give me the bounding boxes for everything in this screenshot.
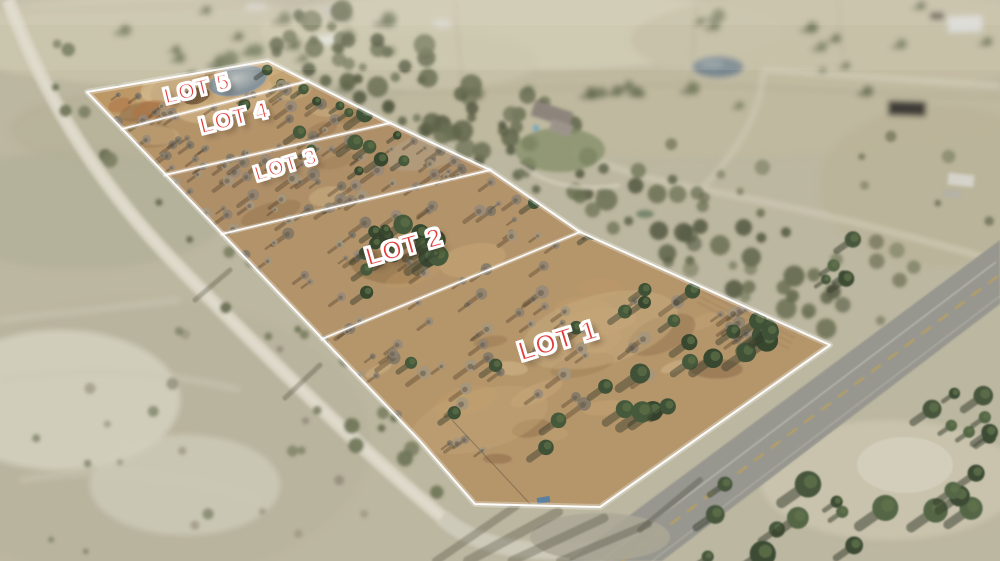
green-tree-highlight: [365, 288, 372, 295]
roadside-tree: [220, 302, 231, 313]
bare-tree-core: [330, 148, 333, 151]
bare-tree-core: [390, 148, 393, 151]
bare-tree-core: [188, 190, 191, 193]
scrub: [869, 253, 885, 269]
shrub: [334, 475, 344, 485]
bare-tree-core: [188, 144, 192, 148]
scrub: [869, 234, 884, 249]
shrub: [276, 346, 283, 353]
bare-tree-core: [287, 118, 291, 122]
shrub: [48, 537, 54, 543]
woodland-tree: [710, 235, 730, 255]
bare-tree-core: [144, 138, 148, 142]
woodland-tree: [519, 87, 535, 103]
bare-tree-core: [480, 343, 485, 348]
bare-tree-core: [484, 327, 489, 332]
bare-tree-core: [513, 198, 518, 203]
shrub: [178, 447, 186, 455]
green-tree-highlight: [840, 508, 846, 514]
bare-tree-core: [331, 118, 336, 123]
scrub: [755, 160, 770, 175]
green-tree-highlight: [348, 109, 353, 114]
green-tree-highlight: [929, 403, 938, 412]
bare-tree-core: [136, 95, 139, 98]
green-tree-highlight: [603, 381, 610, 388]
woodland-tree: [506, 145, 516, 155]
scrub: [885, 131, 896, 142]
green-tree-highlight: [968, 500, 980, 512]
scrub: [663, 256, 674, 267]
green-tree-highlight: [983, 413, 989, 419]
bare-tree-core: [428, 162, 432, 166]
green-tree-highlight: [302, 85, 307, 90]
bare-tree-core: [196, 173, 199, 176]
bare-tree-core: [323, 129, 326, 132]
scrub: [802, 308, 813, 319]
bare-tree-core: [536, 234, 539, 237]
bare-tree-core: [244, 175, 249, 180]
woodland-tree: [816, 318, 836, 338]
green-tree-highlight: [379, 154, 386, 161]
roadside-tree: [313, 406, 322, 415]
green-tree-highlight: [953, 389, 959, 395]
bare-tree-core: [316, 147, 319, 150]
green-tree-highlight: [358, 168, 363, 173]
bare-tree-core: [423, 147, 426, 150]
pasture-tree-highlight: [600, 89, 605, 94]
woodland-tree: [382, 100, 395, 113]
roadside-tree: [344, 418, 360, 434]
bare-tree-core: [426, 320, 430, 324]
woodland-tree: [668, 175, 678, 185]
scrub: [729, 261, 738, 270]
scrub: [889, 242, 905, 258]
roadside-tree: [102, 152, 118, 168]
bare-tree-core: [279, 197, 283, 201]
bare-tree-core: [485, 356, 490, 361]
green-tree-highlight: [315, 98, 320, 103]
pasture-tree-highlight: [617, 87, 622, 92]
green-tree-highlight: [974, 467, 983, 476]
green-tree-highlight: [795, 510, 806, 521]
bare-tree-core: [488, 181, 492, 185]
shrub: [84, 460, 92, 468]
scrub: [860, 181, 869, 190]
shrub: [360, 510, 368, 518]
bare-tree-core: [448, 442, 451, 445]
building: [888, 100, 927, 116]
woodland-tree: [391, 72, 401, 82]
woodland-tree: [777, 280, 791, 294]
bare-tree-core: [160, 105, 163, 108]
green-tree-highlight: [768, 325, 777, 334]
bare-tree-core: [542, 305, 546, 309]
bare-tree-core: [350, 234, 353, 237]
roadside-tree: [59, 105, 71, 117]
bare-tree-core: [204, 147, 207, 150]
bare-tree-core: [538, 290, 544, 296]
pasture-tree-highlight: [739, 103, 743, 107]
shrub: [203, 509, 214, 520]
roadside-tree: [430, 486, 443, 499]
scrub: [716, 170, 725, 179]
green-tree-highlight: [544, 442, 552, 450]
roadside-tree: [52, 84, 60, 92]
pasture-tree-highlight: [630, 85, 634, 89]
bare-tree-core: [316, 181, 319, 184]
bare-tree-core: [462, 438, 466, 442]
scrub: [942, 150, 955, 163]
bare-tree-core: [249, 193, 254, 198]
green-tree-highlight: [409, 358, 415, 364]
shrub: [175, 327, 184, 336]
green-tree-highlight: [980, 389, 990, 399]
woodland-tree: [422, 113, 441, 132]
bare-tree-core: [517, 311, 521, 315]
woodland-tree: [781, 227, 791, 237]
bare-tree-core: [540, 264, 545, 269]
bare-tree-core: [431, 173, 436, 178]
green-tree-highlight: [835, 497, 841, 503]
green-tree-highlight: [723, 479, 731, 487]
shrub: [190, 521, 199, 530]
pasture-tree-highlight: [867, 87, 872, 92]
green-tree-highlight: [804, 475, 817, 488]
green-tree-highlight: [844, 273, 852, 281]
bare-tree-core: [411, 140, 415, 144]
shrub: [148, 406, 159, 417]
green-tree-highlight: [666, 401, 674, 409]
bare-tree-core: [185, 137, 188, 140]
shrub: [104, 421, 111, 428]
bare-tree-core: [374, 374, 377, 377]
bare-tree-core: [395, 343, 399, 347]
green-tree-highlight: [639, 404, 650, 415]
shed: [944, 189, 961, 199]
shrub: [287, 445, 298, 456]
woodland-tree: [628, 178, 644, 194]
woodland-tree: [598, 163, 609, 174]
bare-tree-core: [462, 387, 467, 392]
green-tree-highlight: [688, 356, 696, 364]
pool: [533, 125, 539, 131]
green-tree-highlight: [494, 361, 501, 368]
scrub: [892, 273, 907, 288]
distance-haze: [0, 0, 1000, 25]
scrub: [907, 260, 921, 274]
woodland-tree: [624, 216, 633, 225]
scrub: [935, 200, 942, 207]
bare-tree-core: [176, 139, 179, 142]
sand-patch: [857, 437, 953, 493]
green-tree-highlight: [353, 137, 361, 145]
bare-tree-core: [440, 365, 443, 368]
bare-tree-core: [279, 98, 282, 101]
shrub: [297, 446, 305, 454]
bare-tree-core: [459, 167, 463, 171]
green-tree-highlight: [622, 403, 631, 412]
pasture-tree-highlight: [692, 83, 698, 89]
shrub: [32, 434, 40, 442]
roadside-tree: [378, 424, 386, 432]
roadside-tree: [294, 326, 301, 333]
woodland-tree: [413, 114, 421, 122]
roadside-tree: [300, 330, 309, 339]
green-tree-highlight: [967, 428, 973, 434]
bare-tree-core: [583, 354, 586, 357]
bare-tree-core: [302, 274, 306, 278]
woodland-tree: [575, 169, 584, 178]
bare-tree-core: [161, 154, 163, 156]
green-tree-highlight: [759, 545, 772, 558]
bare-tree-core: [352, 183, 357, 188]
green-tree-highlight: [298, 127, 305, 134]
woodland-tree: [756, 233, 766, 243]
scrub: [744, 262, 757, 275]
woodland-tree: [532, 185, 541, 194]
bare-tree-core: [308, 281, 311, 284]
woodland-tree: [693, 219, 708, 234]
shrub: [166, 378, 178, 390]
green-tree-highlight: [987, 426, 995, 434]
green-tree-highlight: [706, 552, 712, 558]
green-tree-highlight: [950, 484, 959, 493]
green-tree-highlight: [452, 408, 459, 415]
bare-tree-core: [339, 296, 343, 300]
terrain-graphic: [0, 0, 1000, 561]
green-tree-highlight: [824, 276, 829, 281]
green-tree-highlight: [950, 421, 956, 427]
bare-tree-core: [390, 182, 394, 186]
scrub: [835, 297, 851, 313]
woodland-tree: [367, 76, 388, 97]
bare-tree-core: [193, 158, 196, 161]
green-tree-highlight: [850, 234, 858, 242]
bare-tree-core: [272, 241, 275, 244]
scrub: [858, 153, 865, 160]
bare-tree-core: [337, 243, 341, 247]
woodland-tree: [631, 163, 646, 178]
bare-tree-core: [580, 402, 586, 408]
green-tree-highlight: [851, 539, 860, 548]
shrub: [302, 417, 309, 424]
bare-tree-core: [535, 393, 539, 397]
bare-tree-core: [287, 105, 292, 110]
roadside-tree: [397, 450, 413, 466]
green-tree-highlight: [710, 351, 720, 361]
bare-tree-core: [718, 313, 721, 316]
scrub: [683, 261, 699, 277]
bare-tree-core: [374, 168, 380, 174]
small-pond: [636, 210, 654, 219]
woodland-tree: [649, 221, 668, 240]
bare-tree-core: [273, 209, 276, 212]
bare-tree-core: [488, 209, 493, 214]
bare-tree-core: [529, 322, 533, 326]
bare-tree-core: [429, 204, 434, 209]
pasture-tree-highlight: [641, 91, 645, 95]
roadside-tree: [155, 199, 162, 206]
woodland-tree: [756, 209, 765, 218]
green-tree-highlight: [643, 285, 650, 292]
scrub: [876, 316, 885, 325]
green-tree-highlight: [637, 366, 647, 376]
bare-tree-core: [240, 160, 245, 165]
woodland-tree: [460, 74, 482, 96]
bare-tree-core: [344, 257, 346, 259]
green-tree-highlight: [712, 508, 722, 518]
bare-tree-core: [497, 203, 500, 206]
green-tree-highlight: [339, 103, 343, 107]
green-tree-highlight: [881, 499, 894, 512]
green-tree-highlight: [643, 298, 649, 304]
bare-tree-core: [224, 213, 228, 217]
bare-tree-core: [560, 372, 566, 378]
scrub: [984, 216, 993, 225]
bare-tree-core: [458, 402, 464, 408]
roadside-tree: [186, 236, 193, 243]
woodland-tree: [585, 202, 600, 217]
green-tree-highlight: [672, 316, 678, 322]
scrub: [740, 291, 751, 302]
bare-tree-core: [117, 94, 119, 96]
woodland-tree: [807, 268, 820, 281]
green-tree-highlight: [402, 157, 408, 163]
bare-tree-core: [478, 292, 483, 297]
woodland-tree: [320, 75, 332, 87]
bare-tree-core: [266, 260, 270, 264]
bare-tree-core: [284, 232, 289, 237]
bare-tree-core: [337, 198, 343, 204]
shrub: [83, 548, 89, 554]
woodland-tree: [735, 219, 752, 236]
bare-tree-core: [338, 185, 342, 189]
woodland-tree: [419, 68, 438, 87]
bare-tree-core: [362, 221, 367, 226]
shrub: [84, 383, 95, 394]
roadside-tree: [78, 106, 90, 118]
bare-tree-core: [225, 179, 230, 184]
shrub: [117, 459, 124, 466]
green-tree-highlight: [556, 415, 564, 423]
bare-tree-core: [509, 234, 514, 239]
bare-tree-core: [309, 173, 315, 179]
woodland-tree: [607, 222, 620, 235]
shrub: [259, 508, 266, 515]
bare-tree-core: [573, 395, 577, 399]
woodland-tree: [498, 121, 506, 129]
green-tree-highlight: [396, 132, 400, 136]
scrub: [665, 138, 677, 150]
scrub: [736, 188, 743, 195]
woodland-tree: [648, 185, 667, 204]
woodland-tree: [503, 106, 519, 122]
bare-tree-core: [451, 159, 456, 164]
green-tree-highlight: [400, 217, 410, 227]
bare-tree-core: [371, 356, 374, 359]
bare-tree-core: [222, 207, 225, 210]
lawn: [515, 128, 605, 172]
scrub: [699, 192, 710, 203]
woodland-tree: [452, 120, 473, 141]
green-tree-highlight: [384, 226, 389, 231]
roadside-tree: [348, 438, 364, 454]
bare-tree-core: [562, 309, 567, 314]
woodland-tree: [339, 73, 356, 90]
woodland-tree: [466, 102, 479, 115]
bare-tree-core: [420, 370, 426, 376]
bare-tree-core: [170, 167, 173, 170]
bare-tree-core: [390, 352, 395, 357]
green-tree-highlight: [832, 261, 838, 267]
woodland-tree: [473, 142, 491, 160]
aerial-photo: LOT 5 LOT 4 LOT 3 LOT 2 LOT 1: [0, 0, 1000, 561]
bare-tree-core: [640, 336, 646, 342]
green-tree-highlight: [368, 142, 375, 149]
woodland-tree: [669, 186, 686, 203]
bare-tree-core: [513, 219, 516, 222]
green-tree-highlight: [687, 336, 695, 344]
scrub: [686, 236, 701, 251]
shrub: [294, 530, 302, 538]
bare-tree-core: [476, 209, 481, 214]
woodland-tree: [573, 189, 587, 203]
bare-tree-core: [247, 204, 251, 208]
roadside-tree: [264, 332, 272, 340]
